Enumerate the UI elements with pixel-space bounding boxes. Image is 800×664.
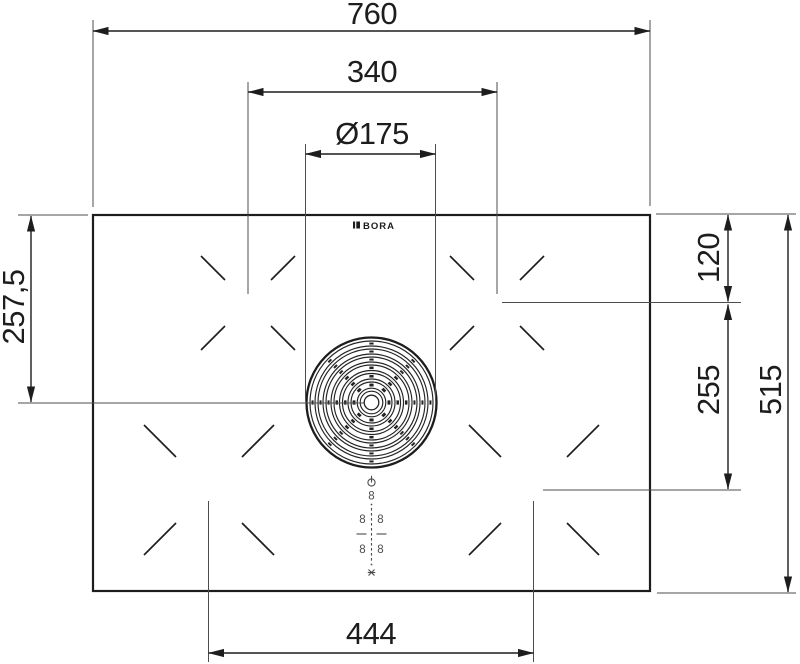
extractor-level-display: 8 bbox=[368, 491, 374, 503]
dimension-total-depth: 515 bbox=[657, 215, 796, 593]
control-dot bbox=[371, 564, 373, 566]
dimension-label: 340 bbox=[347, 54, 397, 89]
bora-logo-text: BORA bbox=[363, 221, 395, 232]
dimension-top-to-extractor-center: 257,5 bbox=[0, 215, 88, 402]
zone-level-display: 8 bbox=[377, 544, 383, 556]
dimension-label: 120 bbox=[691, 233, 726, 283]
dimension-label: 257,5 bbox=[0, 269, 31, 344]
bora-logo-mark bbox=[353, 222, 360, 229]
dimension-label: 760 bbox=[347, 0, 397, 31]
dimension-total-width: 760 bbox=[93, 0, 650, 207]
bora-logo-mark-gap bbox=[355, 222, 356, 229]
cooktop-dimension-drawing: BORA bbox=[0, 0, 800, 664]
dimension-label: 515 bbox=[753, 365, 788, 415]
zone-level-display: 8 bbox=[359, 544, 365, 556]
dimension-label: Ø175 bbox=[335, 116, 409, 151]
dimension-label: 444 bbox=[346, 616, 396, 651]
zone-level-display: 8 bbox=[359, 514, 365, 526]
control-dot bbox=[371, 504, 373, 506]
technical-drawing-canvas: BORA bbox=[0, 0, 800, 664]
dimension-label: 255 bbox=[691, 365, 726, 415]
zone-level-display: 8 bbox=[377, 514, 383, 526]
grille-hub-hole bbox=[364, 395, 379, 410]
